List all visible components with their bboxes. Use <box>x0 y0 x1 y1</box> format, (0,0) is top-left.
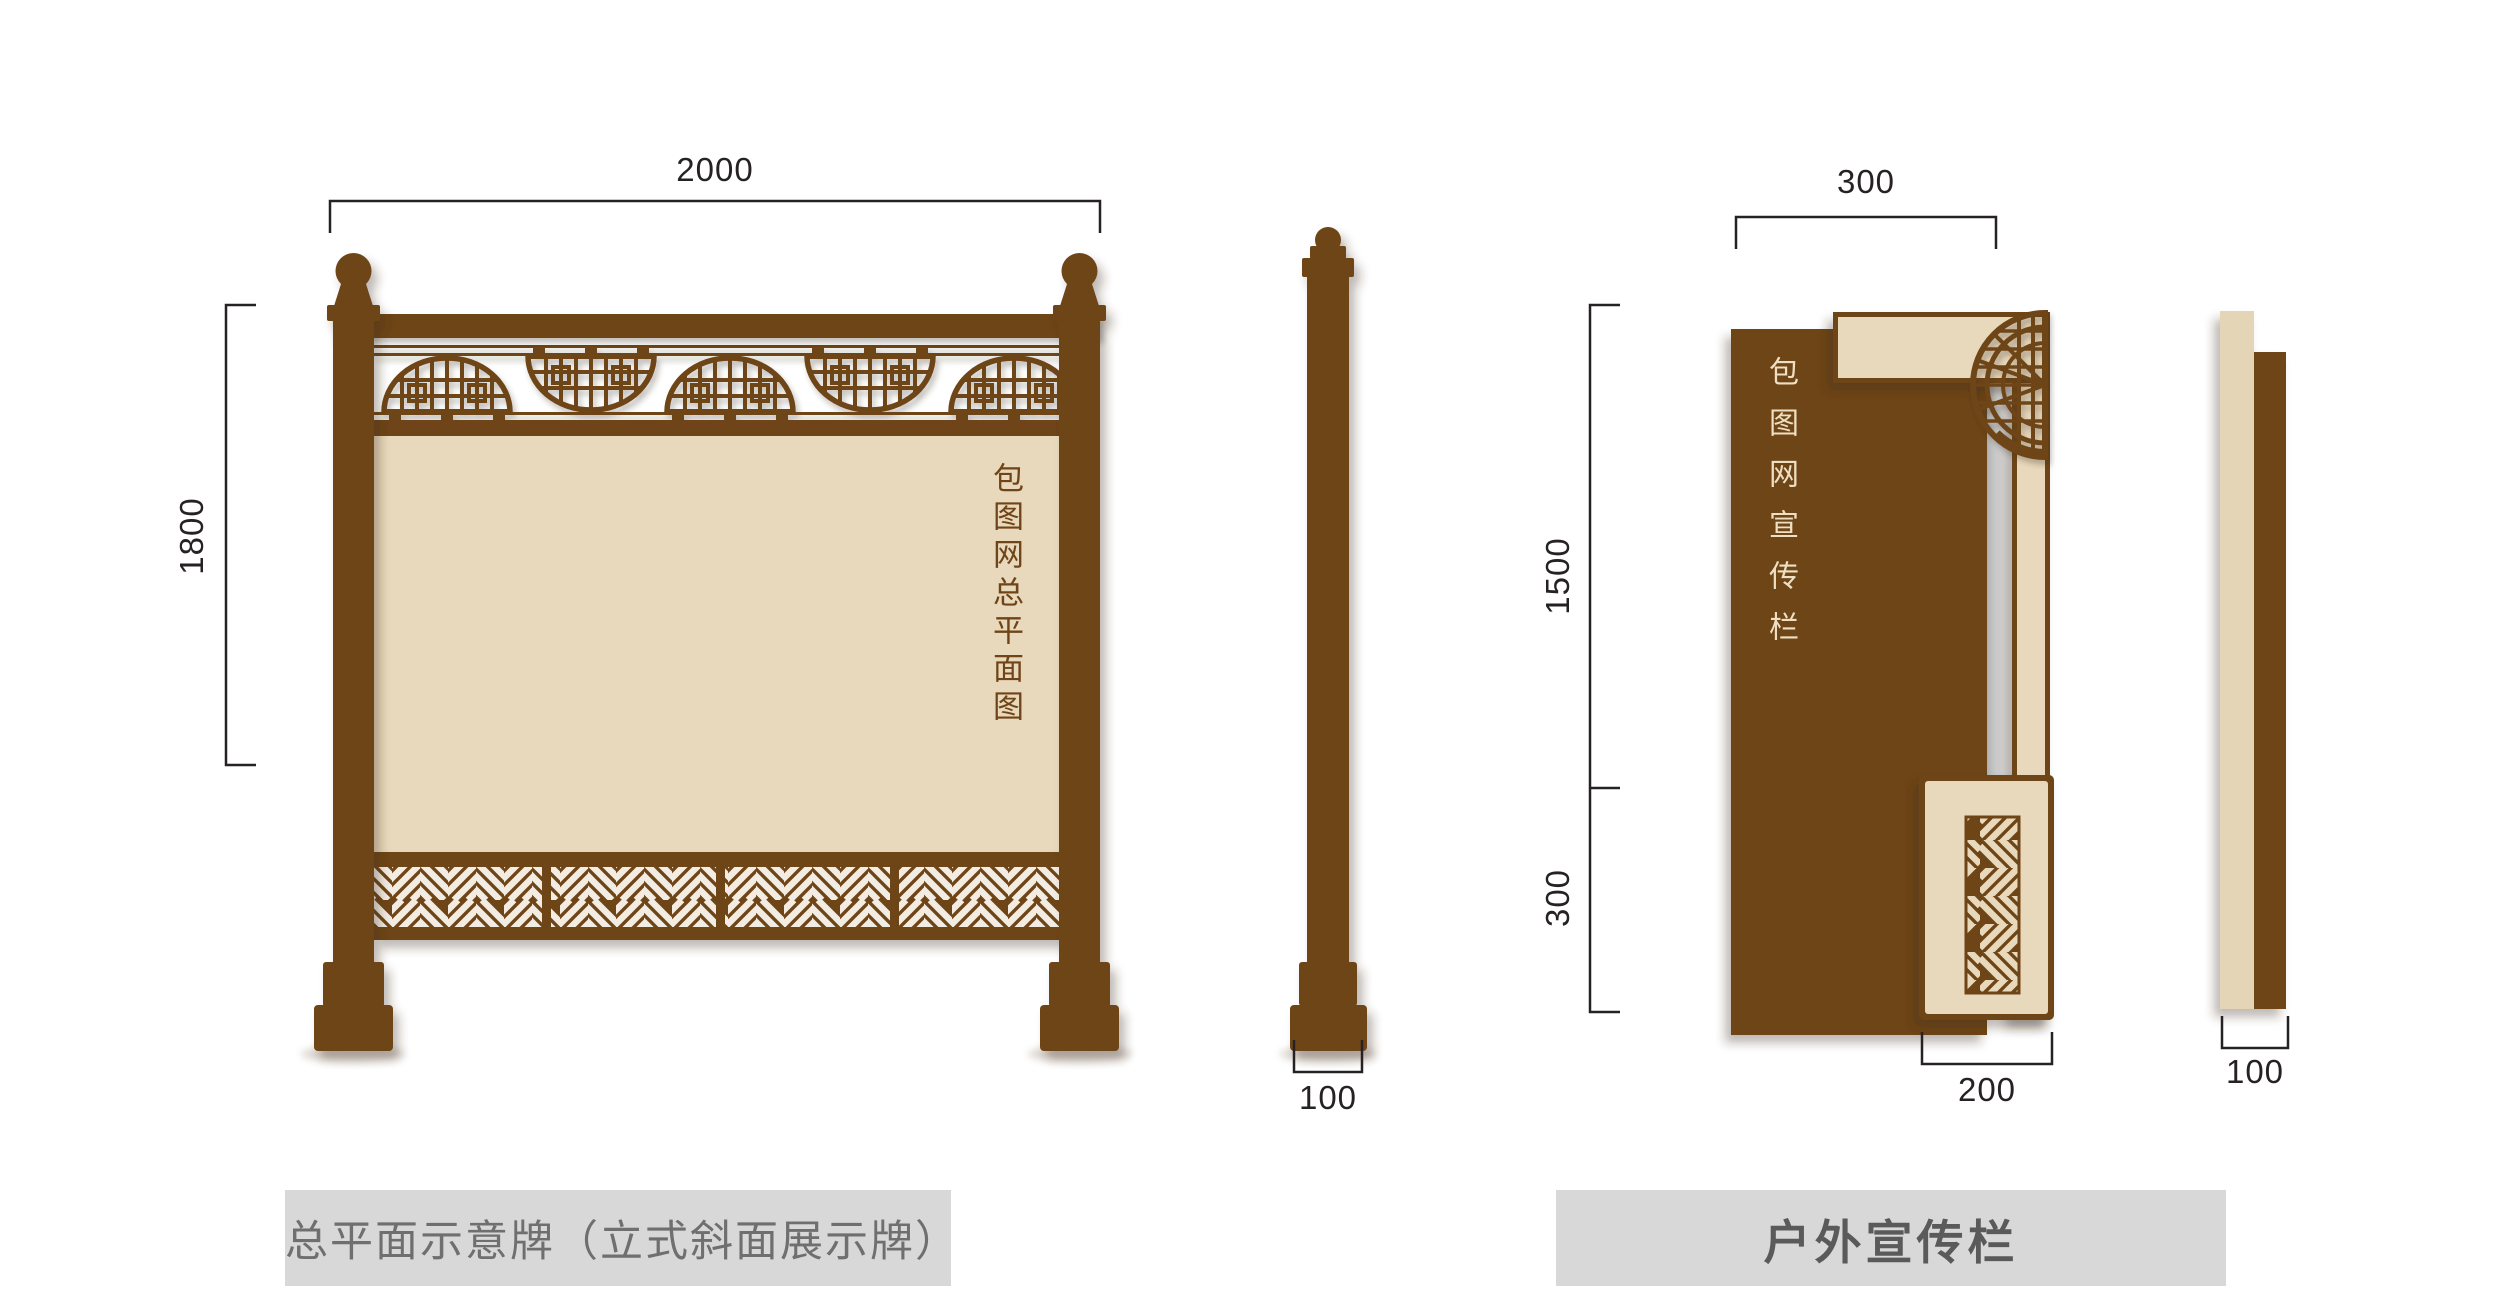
signage-design-sheet: 2000 1800 100 300 1500 300 200 100 包图网总平… <box>0 0 2500 1289</box>
dim-label-upper-1500: 1500 <box>1540 526 1576 626</box>
lattice-dome-down-icon <box>528 347 654 416</box>
side-post-base <box>1290 1005 1367 1051</box>
lattice-dome-up-icon <box>384 352 510 421</box>
display-panel <box>374 436 1060 852</box>
dim-bracket-300-top <box>1736 217 1996 249</box>
dim-label-side-100-right: 100 <box>2205 1054 2305 1090</box>
side-beige-layer <box>2220 311 2254 1009</box>
lattice-dome-up-icon <box>667 352 793 421</box>
right-sign-front-view <box>1590 217 2103 1064</box>
lattice-dome-down-icon <box>807 347 933 416</box>
left-sign-side-view <box>1280 227 1376 1072</box>
right-post <box>1059 318 1100 964</box>
side-post <box>1307 276 1349 964</box>
dim-label-height-1800: 1800 <box>174 486 210 586</box>
dim-label-lower-300: 300 <box>1540 848 1576 948</box>
fret-frieze-band <box>374 345 1077 421</box>
frieze-bottom-rail <box>374 420 1060 436</box>
top-rail <box>333 314 1100 338</box>
side-brown-layer <box>2254 352 2286 1009</box>
right-caption-box: 户外宣传栏 <box>1556 1190 2226 1286</box>
left-caption-box: 总平面示意牌（立式斜面展示牌） <box>285 1190 951 1286</box>
left-post <box>333 318 374 964</box>
bottom-box <box>1919 775 2054 1020</box>
dim-bracket-1800 <box>226 305 256 765</box>
dim-label-side-100: 100 <box>1278 1080 1378 1116</box>
finial-ball-icon <box>1062 253 1098 289</box>
dim-label-width-2000: 2000 <box>330 152 1100 188</box>
diagonal-lattice-icon <box>1966 817 2019 993</box>
left-board-title: 包图网总平面图 <box>983 462 1028 742</box>
left-caption-text: 总平面示意牌（立式斜面展示牌） <box>285 1207 951 1269</box>
right-board-title: 包图网宣传栏 <box>1758 356 1802 676</box>
dim-bracket-2000 <box>330 201 1100 233</box>
dim-label-top-300: 300 <box>1766 164 1966 200</box>
bottom-lattice-band <box>374 852 1060 940</box>
finial-ball-icon <box>336 253 372 289</box>
right-post-base <box>1040 1005 1119 1051</box>
dim-bracket-200 <box>1922 1032 2052 1064</box>
dim-label-box-200: 200 <box>1887 1072 2087 1108</box>
right-caption-text: 户外宣传栏 <box>1764 1204 2019 1273</box>
dim-bracket-100-right <box>2222 1016 2288 1048</box>
left-post-base <box>314 1005 393 1051</box>
lattice-dome-up-icon <box>951 352 1077 421</box>
right-sign-side-view <box>2220 311 2288 1048</box>
dim-bracket-1500-300 <box>1590 305 1620 1012</box>
diagram-canvas <box>0 0 2500 1289</box>
